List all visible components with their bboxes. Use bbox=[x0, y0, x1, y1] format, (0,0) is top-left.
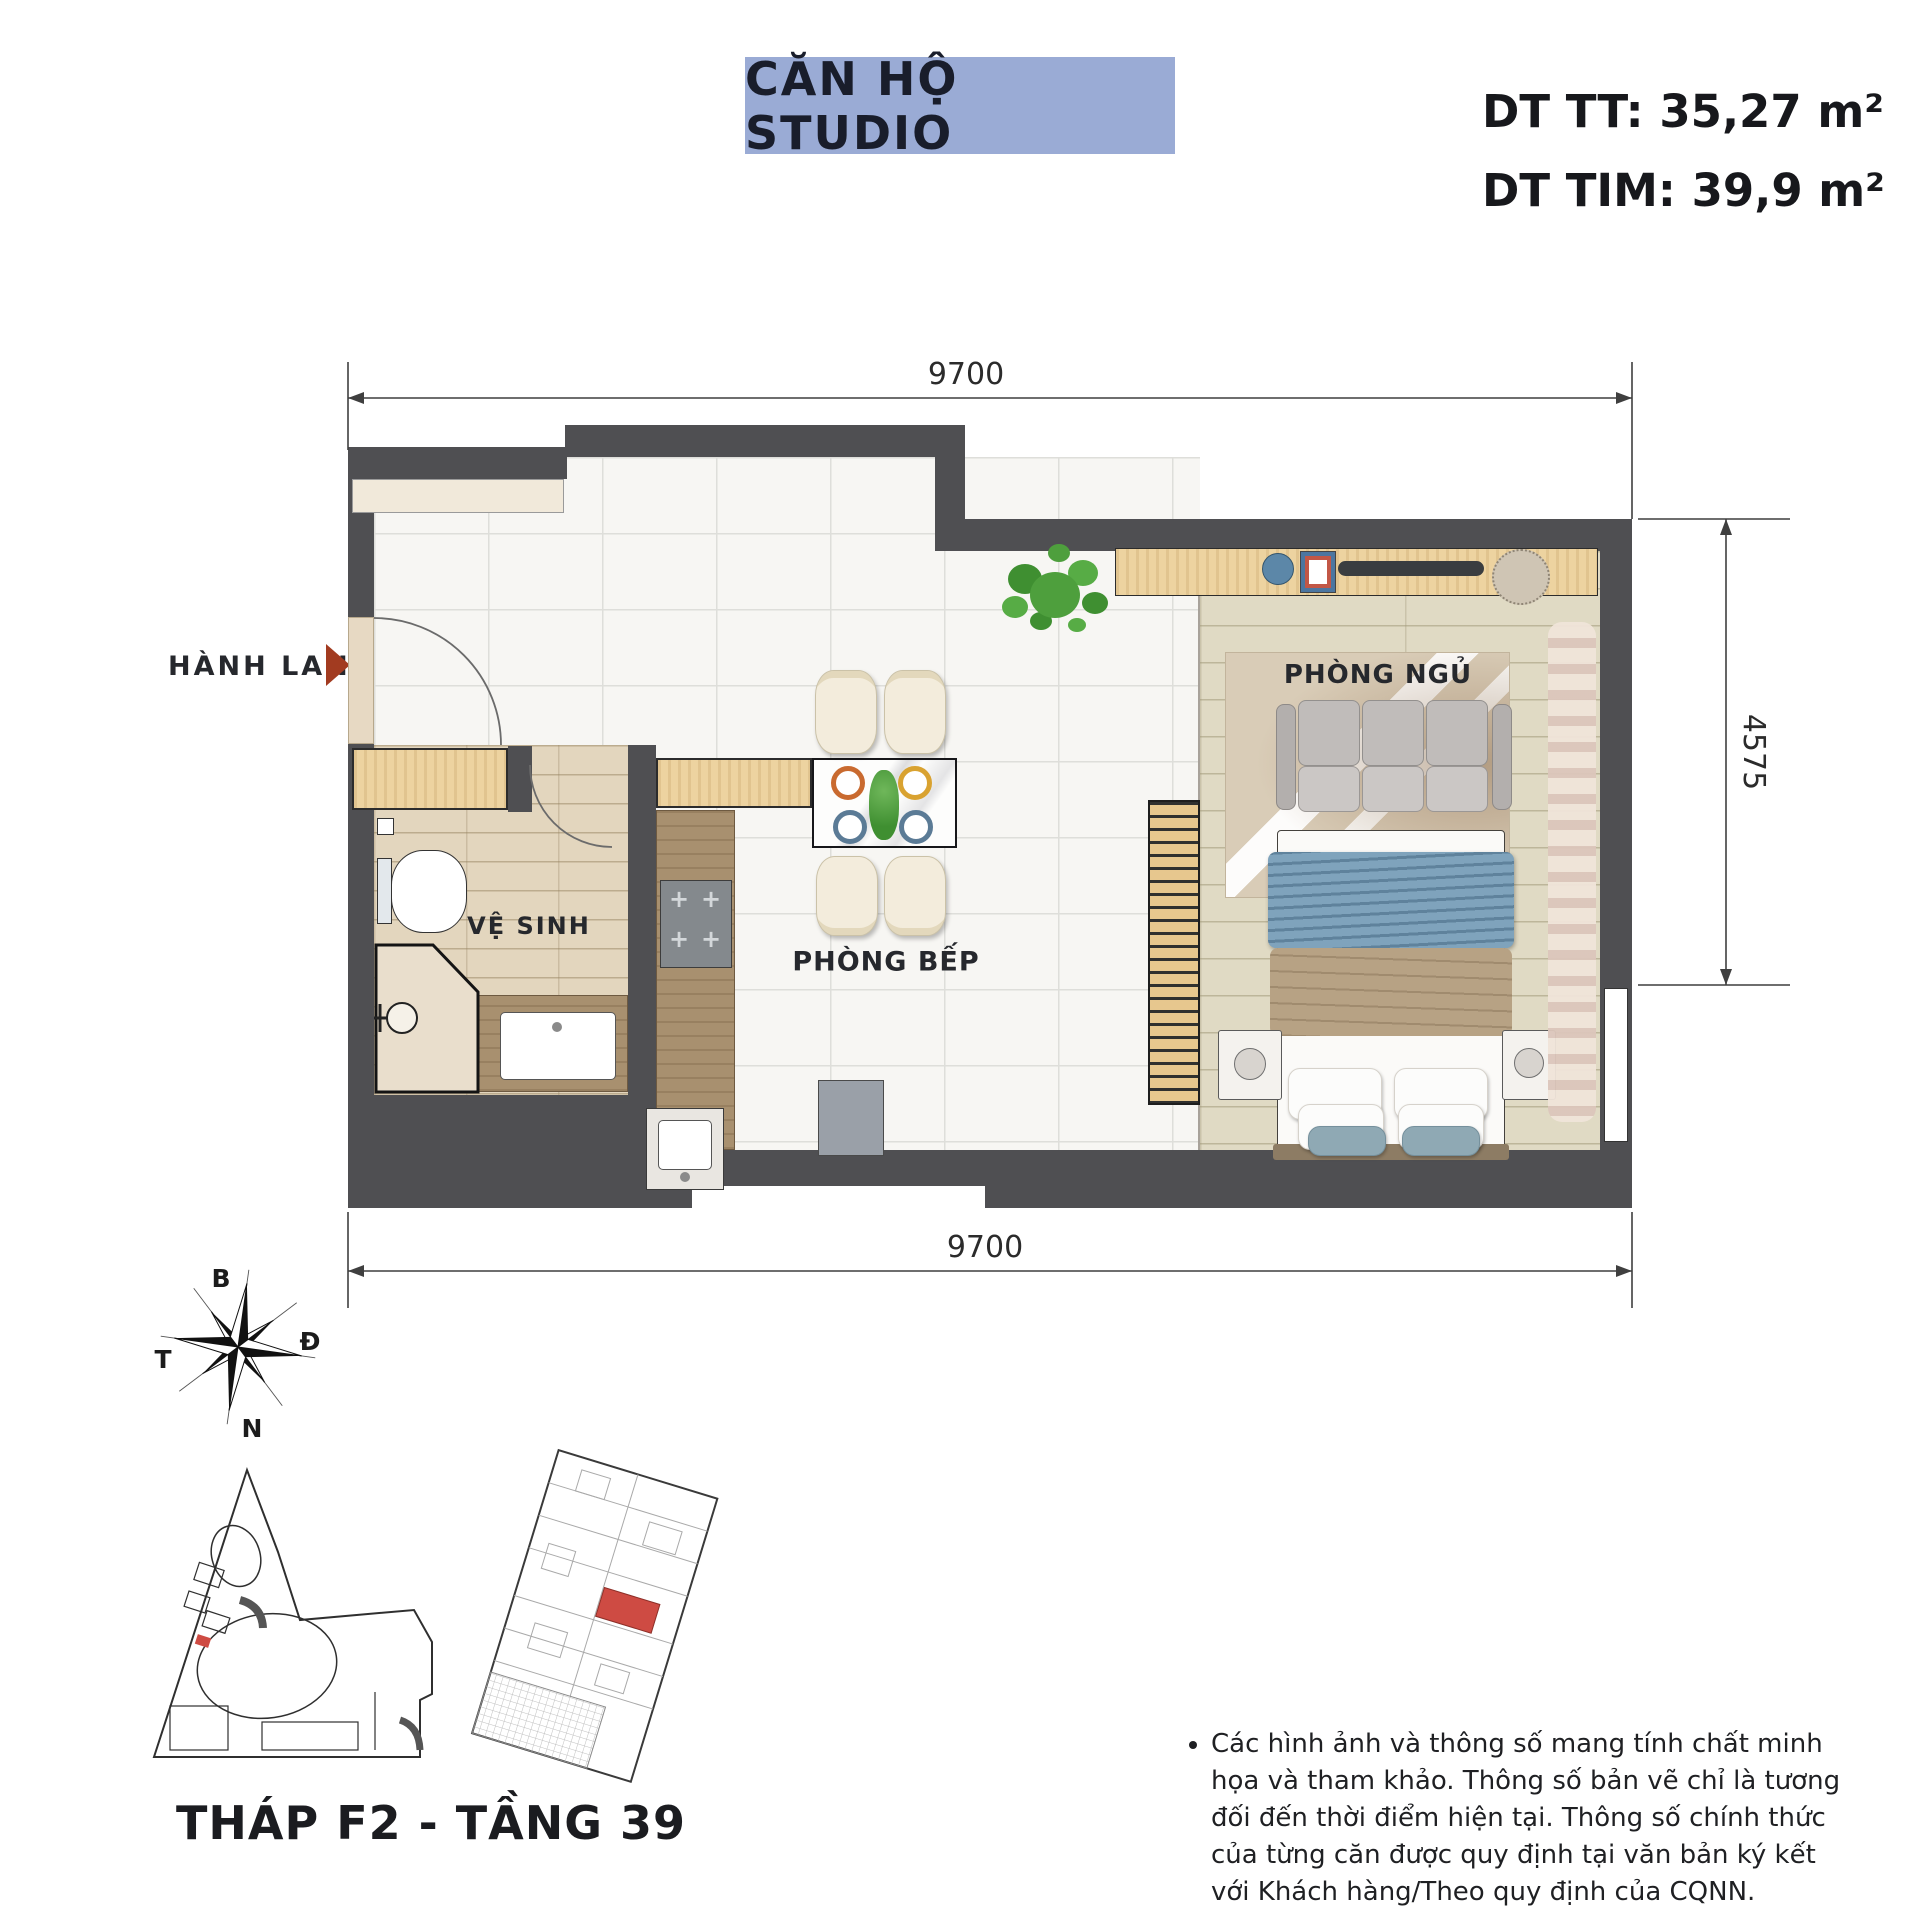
sofa-back-cushion bbox=[1298, 700, 1360, 766]
bed-pillow-blue bbox=[1308, 1126, 1386, 1156]
title-banner: CĂN HỘ STUDIO bbox=[745, 57, 1175, 154]
site-plan-thumbnail bbox=[154, 1470, 432, 1757]
wall-bedroom-top bbox=[935, 519, 1632, 551]
tower-plan-thumbnail bbox=[472, 1450, 717, 1782]
bedroom-label: PHÒNG NGỦ bbox=[1284, 660, 1472, 690]
potted-plant bbox=[1030, 572, 1080, 618]
sofa-back-cushion bbox=[1362, 700, 1424, 766]
plate-blue bbox=[833, 810, 867, 844]
kitchen-faucet bbox=[680, 1172, 690, 1182]
bed-pillow-blue bbox=[1402, 1126, 1480, 1156]
fridge bbox=[818, 1080, 884, 1156]
compass-west-label: T bbox=[154, 1345, 171, 1374]
plate-yellow bbox=[898, 766, 932, 800]
sofa-arm-right bbox=[1492, 704, 1512, 810]
area-tim: DT TIM: 39,9 m² bbox=[1482, 151, 1885, 230]
console-bowl bbox=[1262, 553, 1294, 585]
tower-caption: THÁP F2 - TẦNG 39 bbox=[175, 1796, 687, 1850]
compass-south-label: N bbox=[242, 1414, 263, 1443]
disclaimer: Các hình ảnh và thông số mang tính chất … bbox=[1183, 1726, 1859, 1911]
vanity-faucet bbox=[552, 1022, 562, 1032]
compass-north-label: B bbox=[211, 1264, 230, 1293]
dimension-bottom bbox=[348, 1212, 1632, 1308]
slatted-wardrobe bbox=[1148, 800, 1200, 1105]
burner-icon: + bbox=[701, 927, 721, 951]
sofa-back-cushion bbox=[1426, 700, 1488, 766]
site-unit-marker bbox=[195, 1634, 211, 1648]
bathroom-label: VỆ SINH bbox=[467, 912, 591, 940]
wall-top-middle bbox=[565, 425, 937, 457]
entry-niche-cabinet bbox=[352, 479, 564, 513]
burner-icon: + bbox=[669, 927, 689, 951]
bed-throw-blue bbox=[1268, 852, 1514, 948]
wall-bathroom-right bbox=[628, 745, 656, 1150]
kitchen-counter-vertical bbox=[656, 810, 735, 1150]
bathroom-wall-fixture bbox=[377, 818, 394, 835]
kitchen-label: PHÒNG BẾP bbox=[792, 947, 979, 978]
nightstand-lamp bbox=[1514, 1048, 1544, 1078]
dining-chair bbox=[884, 856, 946, 936]
wall-bottom-left-block bbox=[348, 1150, 692, 1208]
wall-bathroom-bottom bbox=[348, 1095, 656, 1153]
dining-chair bbox=[815, 670, 877, 754]
sofa-arm-left bbox=[1276, 704, 1296, 810]
stove-cooktop: + + + + bbox=[660, 880, 732, 968]
disclaimer-text: Các hình ảnh và thông số mang tính chất … bbox=[1211, 1726, 1859, 1911]
console-wreath bbox=[1492, 549, 1550, 605]
wall-top-left bbox=[348, 447, 567, 479]
entry-bench-cabinet bbox=[352, 748, 508, 810]
sofa-seat-cushion bbox=[1298, 766, 1360, 812]
bed-blanket-tan bbox=[1270, 948, 1512, 1036]
nightstand-lamp bbox=[1234, 1048, 1266, 1080]
compass-east-label: Đ bbox=[300, 1327, 321, 1356]
dining-chair bbox=[816, 856, 878, 936]
burner-icon: + bbox=[669, 887, 689, 911]
entrance-door-opening bbox=[348, 617, 374, 744]
plate-orange bbox=[831, 766, 865, 800]
dim-bottom-value: 9700 bbox=[947, 1230, 1023, 1265]
table-centerpiece-plant bbox=[869, 770, 899, 840]
sofa-seat-cushion bbox=[1362, 766, 1424, 812]
tower-unit-highlight bbox=[596, 1588, 660, 1634]
dimension-right bbox=[1638, 519, 1790, 985]
burner-icon: + bbox=[701, 887, 721, 911]
area-tt: DT TT: 35,27 m² bbox=[1482, 72, 1885, 151]
wall-bathroom-top bbox=[508, 746, 532, 812]
dining-chair bbox=[884, 670, 946, 754]
toilet bbox=[391, 850, 467, 933]
page-title: CĂN HỘ STUDIO bbox=[745, 52, 1175, 160]
plate-blue bbox=[899, 810, 933, 844]
dim-top-value: 9700 bbox=[928, 357, 1004, 392]
kitchen-counter-top bbox=[656, 758, 812, 808]
area-info: DT TT: 35,27 m² DT TIM: 39,9 m² bbox=[1482, 72, 1885, 230]
console-book bbox=[1300, 551, 1336, 593]
sofa-seat-cushion bbox=[1426, 766, 1488, 812]
window-right-wall bbox=[1604, 988, 1628, 1142]
toilet-tank bbox=[377, 858, 392, 924]
kitchen-sink-basin bbox=[658, 1120, 712, 1170]
console-tray bbox=[1338, 561, 1484, 576]
dim-right-value: 4575 bbox=[1736, 714, 1771, 790]
entrance-arrow-icon bbox=[326, 644, 350, 686]
floorplan-page: CĂN HỘ STUDIO DT TT: 35,27 m² DT TIM: 39… bbox=[0, 0, 1920, 1920]
compass-rose-icon: B Đ T N bbox=[150, 1259, 326, 1443]
curtain bbox=[1548, 622, 1596, 1122]
